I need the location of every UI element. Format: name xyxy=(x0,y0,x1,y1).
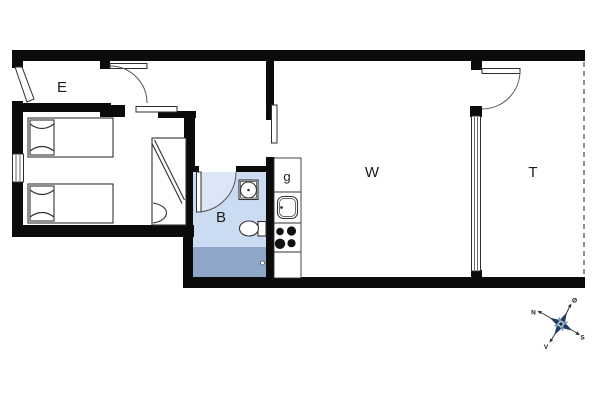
wall-segment xyxy=(12,50,23,68)
pillow-icon xyxy=(30,186,54,221)
bedroom-sliding-door-leaf xyxy=(136,107,177,113)
bathroom-label: B xyxy=(216,209,226,226)
compass-center-dot xyxy=(559,322,563,326)
living-room-label: W xyxy=(365,164,380,181)
compass-west-label: V xyxy=(544,344,549,351)
wall-segment xyxy=(12,225,194,237)
compass-north-label: N xyxy=(531,310,536,317)
wall-segment xyxy=(183,277,585,288)
bunk-bed xyxy=(152,138,186,225)
shower-drain-icon xyxy=(261,261,265,265)
wall-segment xyxy=(266,157,274,288)
compass-rose: N Ø S V xyxy=(531,298,585,352)
living-room-door-leaf xyxy=(272,105,278,143)
shower-floor-area xyxy=(193,247,266,277)
washbasin-icon xyxy=(239,180,258,200)
wall-segment xyxy=(236,166,267,172)
cabinet-label: g xyxy=(283,169,290,184)
bed-bottom xyxy=(28,184,113,223)
wall-segment xyxy=(100,61,110,69)
bed-top xyxy=(28,118,113,157)
entry-hall-door xyxy=(110,64,147,104)
compass-east-label: Ø xyxy=(572,298,577,305)
living-terrace-window xyxy=(472,116,481,271)
bedroom-window xyxy=(13,154,24,182)
toilet-icon xyxy=(240,221,267,236)
terrace-label: T xyxy=(528,164,537,181)
wall-segment xyxy=(471,61,482,70)
wall-segment xyxy=(12,50,585,61)
pillow-icon xyxy=(30,120,54,155)
bedroom-furniture xyxy=(28,118,186,225)
kitchen-sink-icon xyxy=(278,197,298,219)
compass-south-label: S xyxy=(580,335,585,342)
entrance-door-leaf xyxy=(15,67,34,102)
wall-segment xyxy=(470,106,482,117)
wall-segment xyxy=(12,103,111,112)
wall-segment xyxy=(100,105,125,117)
terrace-door xyxy=(482,69,520,110)
floor-plan-page: E B g W T N Ø S V xyxy=(0,0,600,400)
entry-label: E xyxy=(57,79,67,96)
floor-plan-svg: E B g W T N Ø S V xyxy=(0,0,600,400)
